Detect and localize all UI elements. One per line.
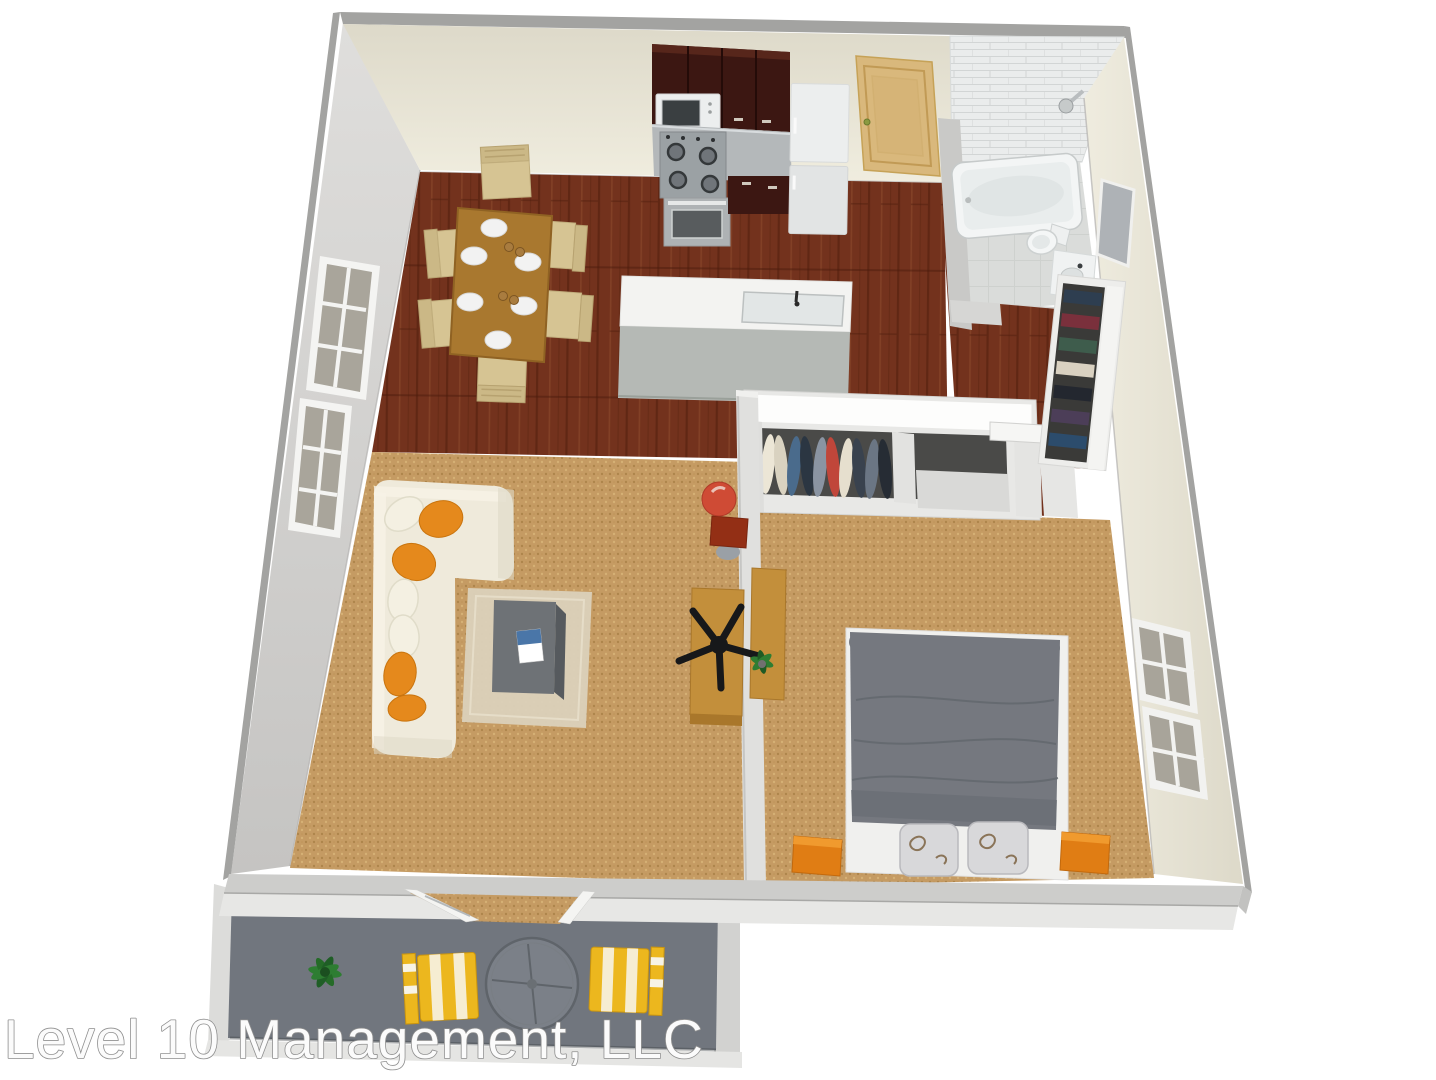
magazine (516, 629, 543, 663)
entry-door (856, 56, 940, 176)
lower-cabinet-handle-2 (768, 186, 777, 189)
door-handle (864, 119, 870, 125)
sofa-backrest-left (372, 492, 386, 750)
bathroom-mirror (1097, 180, 1134, 266)
faucet-base (795, 302, 800, 307)
island-sink (742, 292, 844, 326)
dining-chair-right-2 (544, 291, 593, 342)
refrigerator (789, 84, 850, 235)
bathtub (951, 153, 1083, 240)
kitchen-island (618, 276, 852, 404)
nightstand-right (1060, 832, 1110, 874)
nightstand-left (792, 836, 842, 876)
coffee-table-side (554, 604, 566, 700)
floor-plan-canvas: Level 10 Management, LLC (0, 0, 1436, 1080)
gas-stove (660, 132, 726, 198)
sofa-arm-right (498, 488, 514, 580)
right-window-lower (1142, 706, 1208, 800)
lower-cabinet-handle (742, 182, 751, 185)
hall-wall-stub (1040, 460, 1078, 518)
closet-center-divider (892, 432, 916, 504)
dining-chair-top (480, 145, 531, 199)
balcony-chair-right (589, 945, 664, 1016)
lower-cabinets (728, 176, 790, 214)
desk-right-section (750, 568, 786, 700)
closet-right-stub (1014, 434, 1042, 518)
floor-plan-3d-render: Level 10 Management, LLC (0, 0, 1436, 1080)
sink-faucet (796, 291, 797, 302)
right-window-upper (1132, 618, 1198, 714)
closet-front-panel (916, 470, 1010, 512)
bedroom-closet (744, 390, 1042, 520)
oven (664, 198, 730, 246)
desk-front-edge (690, 714, 742, 726)
watermark-text: Level 10 Management, LLC (4, 1008, 704, 1070)
